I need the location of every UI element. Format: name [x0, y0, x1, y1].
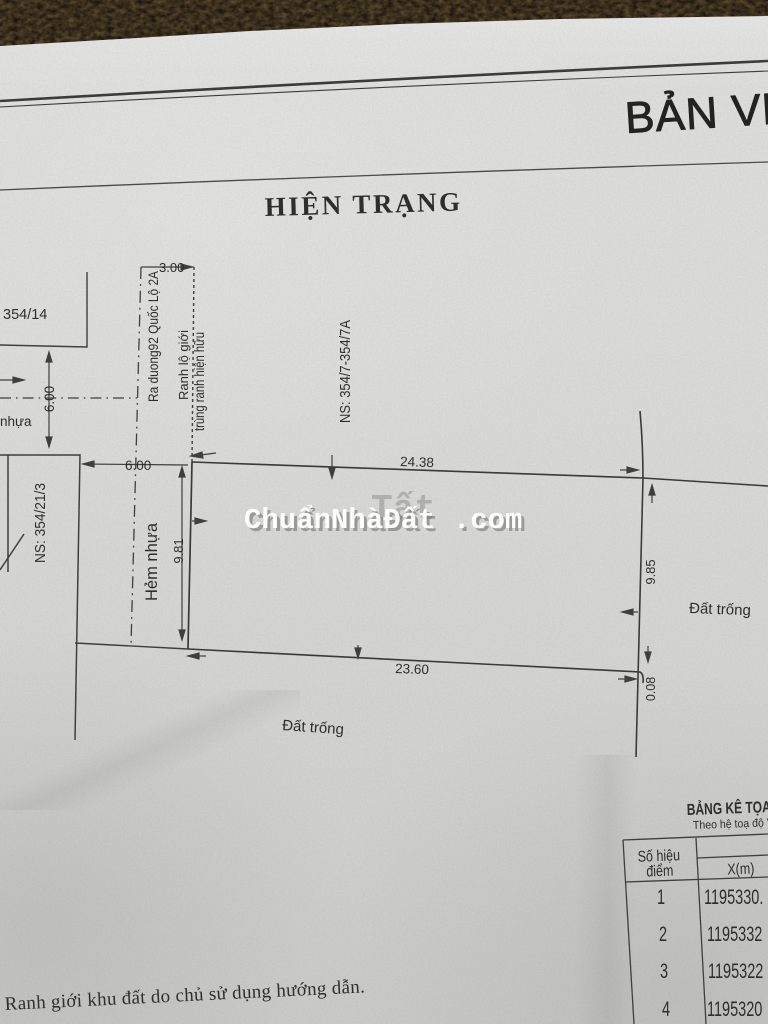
- svg-text:1: 1: [657, 885, 665, 908]
- svg-text:Ra duong92 Quốc Lộ 2A: Ra duong92 Quốc Lộ 2A: [145, 270, 161, 402]
- svg-text:Đất trống: Đất trống: [689, 600, 751, 619]
- svg-text:BẢNG KÊ TỌA ĐỘ: BẢNG KÊ TỌA ĐỘ: [686, 796, 768, 819]
- svg-text:Hẻm nhựa: Hẻm nhựa: [143, 522, 161, 601]
- svg-text:1195322: 1195322: [708, 959, 763, 982]
- svg-text:trùng ranh hiện hữu: trùng ranh hiện hữu: [192, 332, 207, 431]
- svg-text:nhựa: nhựa: [0, 414, 32, 429]
- svg-text:3: 3: [660, 959, 668, 982]
- svg-text:354/14: 354/14: [3, 307, 47, 323]
- svg-text:điểm: điểm: [646, 861, 674, 880]
- svg-text:Ranh lộ giới: Ranh lộ giới: [176, 330, 191, 400]
- svg-text:1195330.: 1195330.: [704, 885, 763, 908]
- svg-text:X(m): X(m): [727, 859, 755, 878]
- svg-text:4: 4: [662, 997, 670, 1020]
- svg-text:6.00: 6.00: [42, 386, 57, 412]
- svg-text:NS: 354/21/3: NS: 354/21/3: [32, 483, 49, 563]
- svg-text:1195332: 1195332: [707, 922, 762, 945]
- svg-text:3.00: 3.00: [159, 260, 184, 275]
- svg-text:24.38: 24.38: [400, 454, 434, 470]
- svg-text:9.85: 9.85: [643, 559, 658, 584]
- svg-text:Ranh giới khu đất do chủ sử dụ: Ranh giới khu đất do chủ sử dụng hướng d…: [4, 976, 365, 1015]
- svg-text:0.08: 0.08: [644, 677, 658, 701]
- svg-text:ChuẩnNhàĐất .com: ChuẩnNhàĐất .com: [244, 503, 522, 537]
- svg-text:HIỆN TRẠNG: HIỆN TRẠNG: [264, 186, 463, 222]
- svg-text:2: 2: [659, 922, 667, 945]
- svg-text:Đất trống: Đất trống: [282, 717, 345, 738]
- svg-text:NS: 354/7-354/7A: NS: 354/7-354/7A: [338, 320, 354, 423]
- svg-text:23.60: 23.60: [395, 661, 429, 677]
- svg-text:1195320: 1195320: [707, 997, 762, 1020]
- svg-text:Theo hệ toạ độ VN-2000: Theo hệ toạ độ VN-2000: [693, 816, 768, 833]
- svg-text:9.81: 9.81: [171, 538, 186, 563]
- svg-text:6.00: 6.00: [125, 458, 151, 473]
- svg-text:BẢN VẼ: BẢN VẼ: [623, 83, 768, 143]
